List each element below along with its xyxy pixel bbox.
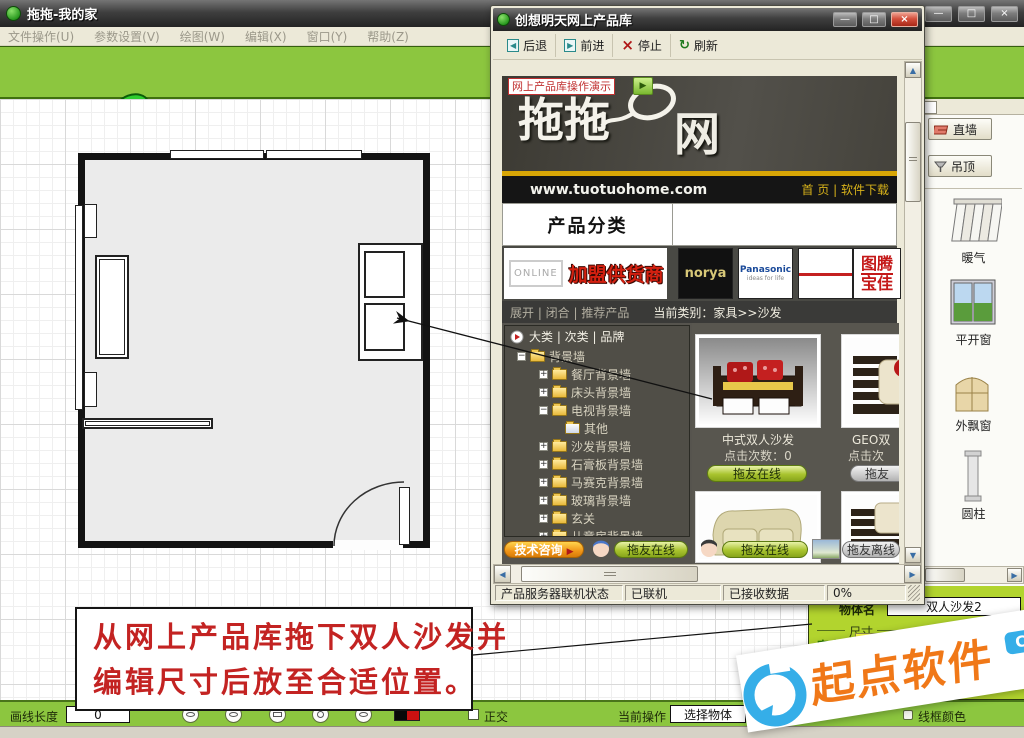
ceiling-label: 吊顶 [951, 158, 975, 175]
supplier-join-text: 加盟供货商 [569, 260, 664, 287]
product-window-nav: ◀ 后退 ▶ 前进 × 停止 ↻ 刷新 [493, 31, 922, 60]
annotation-note: 从网上产品库拖下双人沙发并 编辑尺寸后放至合适位置。 [75, 607, 473, 711]
product-card-geo[interactable] [841, 334, 899, 428]
tree-item-label: 电视背景墙 [571, 402, 631, 419]
product-offline-button[interactable]: 拖友 [850, 465, 899, 482]
tree-item-label: 床头背景墙 [571, 384, 631, 401]
demo-link-label: 网上产品库操作演示 [512, 80, 611, 93]
forward-icon: ▶ [564, 39, 576, 52]
expander-icon[interactable]: + [539, 496, 548, 505]
tree-item[interactable]: + 马赛克背景墙 [505, 473, 689, 491]
menu-settings[interactable]: 参数设置(V) [94, 28, 160, 45]
tree-item[interactable]: − 电视背景墙 [505, 401, 689, 419]
product-window-hscrollbar[interactable]: ◀ ▶ [493, 564, 922, 584]
current-category: 当前类别：家具>>沙发 [653, 304, 781, 321]
size-legend-line-left [817, 630, 845, 631]
refresh-label: 刷新 [694, 37, 718, 54]
status-percent: 0% [827, 585, 906, 601]
straight-wall-button[interactable]: 直墙 [928, 118, 992, 140]
status-connected: 已联机 [625, 585, 721, 601]
forward-button[interactable]: ▶ 前进 [556, 34, 613, 57]
tech-support-button[interactable]: 技术咨询 ▶ [504, 541, 584, 558]
expander-icon[interactable]: + [539, 388, 548, 397]
expander-icon[interactable]: + [539, 514, 548, 523]
window-bottom-strip [0, 726, 1024, 738]
tree-item[interactable]: + 玄关 [505, 509, 689, 527]
vscroll-up-icon[interactable]: ▲ [905, 62, 921, 78]
expander-icon[interactable]: + [539, 532, 548, 538]
status-server-label: 产品服务器联机状态 [495, 585, 623, 601]
app-icon [6, 6, 21, 21]
door-swing-arc [320, 469, 430, 554]
brand-redline[interactable] [798, 248, 853, 299]
stop-icon: × [621, 39, 634, 51]
fixture-left-small-1[interactable] [84, 204, 97, 238]
draw-length-label: 画线长度 [10, 708, 58, 725]
filter-actions[interactable]: 展开 | 闭合 | 推荐产品 [510, 304, 629, 321]
banner-net-char: 网 [674, 98, 720, 164]
product-name[interactable]: 中式双人沙发 [695, 431, 821, 448]
brand-panasonic-text: Panasonic [739, 265, 792, 275]
library-main-area: 大类 | 次类 | 品牌 − 背景墙 + 餐厅背景墙 + [502, 323, 899, 564]
product-library-window: 创想明天网上产品库 — □ × ◀ 后退 ▶ 前进 × 停止 ↻ 刷新 [490, 5, 925, 605]
folder-icon [552, 477, 567, 488]
pw-close-button[interactable]: × [891, 12, 918, 27]
menu-file[interactable]: 文件操作(U) [8, 28, 74, 45]
window-top-left[interactable] [170, 150, 264, 159]
supplier-banner[interactable]: ONLINE 加盟供货商 [504, 248, 667, 299]
column-icon[interactable] [962, 449, 984, 503]
main-window-title: 拖拖-我的家 [27, 4, 97, 23]
brick-icon [934, 124, 949, 135]
supplier-row: ONLINE 加盟供货商 norya Panasonic ideas for l… [502, 246, 897, 301]
menu-window[interactable]: 窗口(Y) [307, 28, 348, 45]
column-label[interactable]: 圆柱 [922, 505, 1024, 522]
banner-links[interactable]: 首 页 | 软件下载 [802, 181, 890, 198]
folder-icon [552, 495, 567, 506]
stop-label: 停止 [638, 37, 662, 54]
back-button[interactable]: ◀ 后退 [499, 34, 556, 57]
pw-maximize-button[interactable]: □ [862, 12, 886, 27]
folder-icon [552, 513, 567, 524]
scroll-right-icon[interactable]: ▶ [1007, 568, 1022, 582]
category-tree: 大类 | 次类 | 品牌 − 背景墙 + 餐厅背景墙 + [504, 325, 690, 537]
tree-item-label: 沙发背景墙 [571, 438, 631, 455]
supplier-online-logo: ONLINE [509, 260, 563, 287]
ortho-label: 正交 [484, 708, 508, 725]
product-window-content: 拖拖 网 网上产品库操作演示 ▶ www.tuotuohome.com 首 页 … [496, 61, 904, 564]
brand-panasonic-sub: ideas for life [739, 275, 792, 282]
category-row: 产品分类 [502, 203, 897, 246]
expander-icon[interactable]: + [539, 370, 548, 379]
tree-item[interactable]: − 背景墙 [505, 347, 689, 365]
demo-link[interactable]: 网上产品库操作演示 [508, 78, 615, 95]
radiator-icon[interactable] [946, 197, 1002, 247]
fixture-left-small-2[interactable] [84, 372, 97, 407]
product-window-title: 创想明天网上产品库 [515, 10, 632, 29]
bay-window-icon[interactable] [952, 369, 992, 413]
tree-item[interactable]: + 沙发背景墙 [505, 437, 689, 455]
sidebar-tab[interactable] [924, 101, 937, 114]
refresh-button[interactable]: ↻ 刷新 [671, 34, 726, 57]
tree-item[interactable]: 其他 [505, 419, 689, 437]
tree-item-label: 其他 [584, 420, 608, 437]
watermark-badge: CNCRK [1004, 620, 1024, 655]
radiator-label[interactable]: 暖气 [922, 249, 1024, 266]
banner-bottom-bar: www.tuotuohome.com 首 页 | 软件下载 [502, 176, 897, 203]
brand-seal-line2: 宝佳 [861, 273, 893, 293]
tree-item-label: 玄关 [571, 510, 595, 527]
product-online-button[interactable]: 拖友在线 [707, 465, 807, 482]
ceiling-button[interactable]: 吊顶 [928, 155, 992, 177]
banner-site-url[interactable]: www.tuotuohome.com [530, 182, 707, 198]
product-image-geo-sofa [845, 338, 899, 424]
close-button[interactable]: × [991, 6, 1018, 22]
bay-window-label[interactable]: 外飘窗 [922, 417, 1024, 434]
casement-window-icon[interactable] [950, 279, 996, 327]
stop-button[interactable]: × 停止 [613, 34, 671, 57]
wireframe-color-swatch[interactable] [903, 710, 913, 720]
sidebar-divider [924, 188, 1022, 189]
filter-row: 展开 | 闭合 | 推荐产品 当前类别：家具>>沙发 [502, 301, 897, 323]
window-top-right[interactable] [266, 150, 362, 159]
refresh-nav-icon: ↻ [679, 38, 690, 53]
folder-icon [552, 405, 567, 416]
brand-norya-text: norya [685, 266, 727, 281]
chat-thumb-image [812, 539, 840, 559]
tree-item-label: 儿童房背景墙 [571, 528, 643, 538]
tree-item-label: 餐厅背景墙 [571, 366, 631, 383]
tree-item-label: 石膏板背景墙 [571, 456, 643, 473]
tree-item-label: 背景墙 [549, 348, 585, 365]
brand-norya[interactable]: norya [678, 248, 733, 299]
hscroll-thumb[interactable] [521, 566, 698, 582]
casement-window-label[interactable]: 平开窗 [922, 331, 1024, 348]
product-card-sofa-cn[interactable] [695, 334, 821, 428]
demo-play-button[interactable]: ▶ [633, 77, 653, 95]
cabinet-left[interactable] [95, 255, 129, 359]
tools-sidebar: 直墙 吊顶 暖气 平开窗 [921, 99, 1024, 586]
watermark-logo-icon [735, 655, 815, 735]
tree-item[interactable]: + 玻璃背景墙 [505, 491, 689, 509]
avatar-boy-icon [698, 539, 720, 559]
ceiling-icon [934, 160, 947, 173]
product-window-status-bar: 产品服务器联机状态 已联机 已接收数据 0% [493, 584, 922, 603]
tree-item[interactable]: + 石膏板背景墙 [505, 455, 689, 473]
current-op-label: 当前操作 [618, 708, 666, 725]
product-name[interactable]: GEO双 [844, 431, 899, 448]
annotation-line-2: 编辑尺寸后放至合适位置。 [93, 660, 471, 705]
folder-icon [552, 531, 567, 538]
tree-header: 大类 | 次类 | 品牌 [529, 328, 624, 345]
chat-offline-button[interactable]: 拖友离线 [842, 541, 900, 558]
tree-item-label: 玻璃背景墙 [571, 492, 631, 509]
product-window-icon [497, 13, 510, 26]
low-wall-bar[interactable] [82, 418, 213, 429]
expander-icon[interactable]: + [539, 460, 548, 469]
chat-online-button-2[interactable]: 拖友在线 [722, 541, 808, 558]
brand-panasonic[interactable]: Panasonic ideas for life [738, 248, 793, 299]
resize-grip[interactable] [908, 585, 920, 601]
current-op-value: 选择物体 [684, 706, 732, 723]
folder-icon [530, 351, 545, 362]
category-title-cell[interactable]: 产品分类 [503, 204, 673, 245]
expander-icon[interactable]: − [517, 352, 526, 361]
chat-online-button-1[interactable]: 拖友在线 [614, 541, 688, 558]
folder-icon [552, 459, 567, 470]
tree-header-icon [510, 330, 524, 344]
avatar-girl-icon [590, 539, 612, 559]
product-clicks: 点击次 [844, 447, 899, 464]
tree-item[interactable]: + 餐厅背景墙 [505, 365, 689, 383]
expander-icon[interactable]: + [539, 442, 548, 451]
product-window-title-bar[interactable]: 创想明天网上产品库 — □ × [493, 8, 922, 31]
back-label: 后退 [523, 37, 547, 54]
product-list: 中式双人沙发 点击次数：0 拖友在线 GE [692, 323, 899, 564]
vscroll-thumb[interactable] [905, 122, 921, 202]
folder-icon [552, 387, 567, 398]
object-name-value: 双人沙发2 [926, 598, 982, 615]
product-window-vscrollbar[interactable]: ▲ ▼ [904, 61, 922, 564]
wireframe-color-label: 线框颜色 [918, 708, 966, 725]
expander-icon[interactable]: − [539, 406, 548, 415]
minimize-button[interactable]: — [925, 6, 952, 22]
brand-seal[interactable]: 图腾 宝佳 [853, 248, 901, 299]
tree-item[interactable]: + 儿童房背景墙 [505, 527, 689, 537]
tech-support-label: 技术咨询 [514, 543, 562, 557]
menu-help[interactable]: 帮助(Z) [367, 28, 409, 45]
folder-icon [552, 441, 567, 452]
sidebar-tab-strip [922, 99, 1024, 115]
tech-support-arrow-icon: ▶ [567, 547, 574, 557]
vscroll-down-icon[interactable]: ▼ [905, 547, 921, 563]
tree-item[interactable]: + 床头背景墙 [505, 383, 689, 401]
pages-icon [565, 423, 580, 434]
product-image-cn-sofa [699, 338, 817, 424]
sidebar-hscrollbar[interactable]: ▶ [923, 566, 1024, 584]
hscroll-right-icon[interactable]: ▶ [904, 565, 921, 583]
window-left-strip[interactable] [75, 205, 83, 410]
expander-icon[interactable]: + [539, 478, 548, 487]
hscroll-left-icon[interactable]: ◀ [494, 565, 511, 583]
restore-button[interactable]: □ [958, 6, 985, 22]
menu-edit[interactable]: 编辑(X) [245, 28, 287, 45]
status-received-label: 已接收数据 [723, 585, 825, 601]
brand-seal-line1: 图腾 [861, 255, 893, 273]
product-clicks: 点击次数：0 [695, 447, 821, 464]
category-title: 产品分类 [548, 212, 628, 238]
app-screen: 拖拖-我的家 — □ × 文件操作(U) 参数设置(V) 绘图(W) 编辑(X)… [0, 0, 1024, 738]
tree-item-label: 马赛克背景墙 [571, 474, 643, 491]
placed-sofa[interactable] [358, 243, 423, 361]
annotation-line-1: 从网上产品库拖下双人沙发并 [93, 615, 471, 660]
folder-icon [552, 369, 567, 380]
straight-wall-label: 直墙 [953, 121, 977, 138]
back-icon: ◀ [507, 39, 519, 52]
menu-draw[interactable]: 绘图(W) [180, 28, 225, 45]
forward-label: 前进 [580, 37, 604, 54]
library-footer: 技术咨询 ▶ 拖友在线 拖友在线 拖友离线 [502, 539, 899, 564]
pw-minimize-button[interactable]: — [833, 12, 857, 27]
